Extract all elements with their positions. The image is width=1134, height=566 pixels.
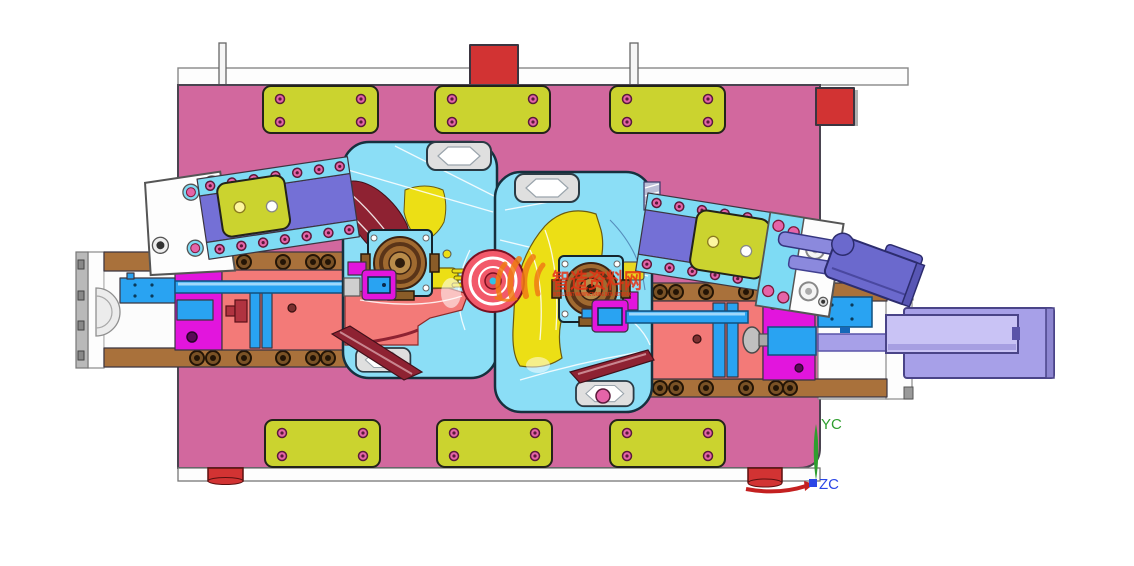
pin-head xyxy=(443,250,451,258)
dot xyxy=(150,294,153,297)
dot xyxy=(850,317,853,320)
cad-viewport[interactable]: 智造资料网 INTELLIGENT MANUFACTURING DATA NET… xyxy=(0,0,1134,566)
dot xyxy=(133,294,136,297)
watermark-subtitle: INTELLIGENT MANUFACTURING DATA NETWORK xyxy=(553,292,631,298)
eyebolt-slot-top-left xyxy=(427,142,491,170)
wear-pad-top-center[interactable] xyxy=(435,86,550,133)
wear-pad-top-left[interactable] xyxy=(263,86,378,133)
clip-icon xyxy=(78,291,84,300)
dot xyxy=(133,283,136,286)
mount-tab xyxy=(127,273,134,279)
y-axis-label: YC xyxy=(821,416,842,433)
mold-assembly-top-view[interactable]: 智造资料网 INTELLIGENT MANUFACTURING DATA NET… xyxy=(0,0,1134,566)
top-plate-edge xyxy=(178,68,908,85)
wear-pad-bottom-right[interactable] xyxy=(610,420,725,467)
side-lock-block[interactable] xyxy=(816,88,854,125)
mount-tab xyxy=(840,327,850,333)
wear-pad-top-right[interactable] xyxy=(610,86,725,133)
wear-pad-bottom-left[interactable] xyxy=(265,420,380,467)
specular-glare xyxy=(526,357,550,373)
clip-icon xyxy=(78,260,84,269)
right-carriage-assembly[interactable] xyxy=(645,283,1054,399)
sleeve-shadow xyxy=(888,344,1016,350)
clamp-slot xyxy=(598,308,622,325)
cylinder-block-right[interactable] xyxy=(768,327,816,355)
slider-wear-pad-right[interactable] xyxy=(689,209,771,280)
bottom-plate-edge xyxy=(178,468,820,481)
dot xyxy=(382,283,386,287)
t-slot-stem xyxy=(226,306,235,316)
wear-pad-bottom-center[interactable] xyxy=(437,420,552,467)
clip-icon xyxy=(78,321,84,330)
dot xyxy=(150,283,153,286)
slider-wear-pad-left[interactable] xyxy=(216,174,291,237)
eyebolt-slot-bottom-right xyxy=(576,381,634,406)
coupler-block-left[interactable] xyxy=(177,300,213,320)
sprue-block[interactable] xyxy=(470,45,518,85)
eyebolt-slot-top-right xyxy=(515,174,579,202)
support-foot-left[interactable] xyxy=(208,468,243,485)
x-axis-arc xyxy=(746,486,806,491)
clamp-slot xyxy=(368,277,390,293)
return-pin-left[interactable] xyxy=(250,288,260,348)
rod-highlight xyxy=(178,283,368,286)
cylinder-end-cap xyxy=(1046,308,1054,378)
locating-ring[interactable] xyxy=(462,250,524,312)
z-axis-label: ZC xyxy=(819,476,839,493)
rod-highlight xyxy=(629,313,745,316)
specular-glare xyxy=(441,278,461,308)
guide-pin-left[interactable] xyxy=(219,43,226,85)
rod-coupler xyxy=(344,278,360,296)
support-foot-right[interactable] xyxy=(748,468,782,487)
dot xyxy=(850,303,853,306)
rod-flange xyxy=(743,327,761,353)
lift-hole xyxy=(596,389,610,403)
cylinder-mount-plate-left[interactable] xyxy=(120,278,175,303)
clip-icon xyxy=(78,351,84,360)
clip-icon xyxy=(904,387,913,399)
return-pin-right[interactable] xyxy=(262,288,272,348)
origin-marker xyxy=(809,479,817,487)
bolt-icon xyxy=(187,332,197,342)
bolt-icon xyxy=(288,304,296,312)
t-slot-head xyxy=(235,300,247,322)
guide-pin-center[interactable] xyxy=(630,43,638,85)
bolt-icon xyxy=(693,335,701,343)
sleeve-clip xyxy=(1012,327,1020,340)
dot xyxy=(830,317,833,320)
watermark-title: 智造资料网 xyxy=(552,269,642,293)
bolt-icon xyxy=(795,364,803,372)
